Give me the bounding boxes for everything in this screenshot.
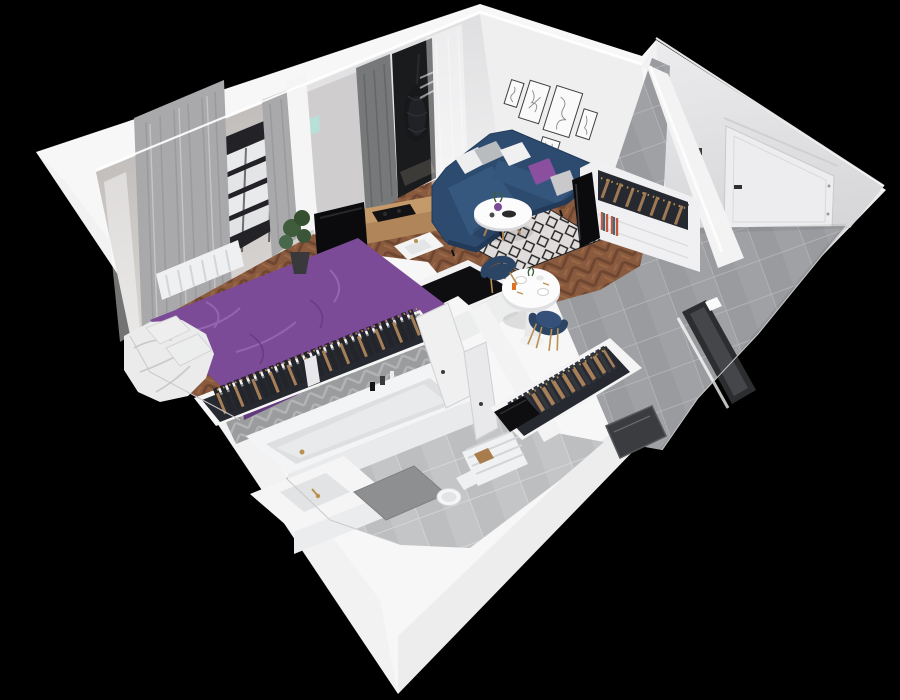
bottle-3: [390, 371, 394, 379]
door-hinge-bottom: [827, 213, 830, 216]
plate-2: [538, 289, 549, 296]
apartment-render: [0, 0, 900, 700]
plant-foliage-3: [279, 235, 293, 249]
sink-tap: [414, 239, 418, 243]
plate-1: [516, 277, 527, 284]
door-hinge-top: [828, 185, 831, 188]
bottle-2: [380, 376, 385, 385]
burner-2: [397, 209, 401, 213]
burner-1: [383, 212, 387, 216]
floorplan-svg: [0, 0, 900, 700]
table-decor: [502, 211, 516, 218]
table-foot: [520, 336, 544, 346]
vase-purple: [494, 203, 502, 211]
door-handle: [734, 185, 742, 189]
table-decor-2: [490, 213, 495, 218]
door-1-handle: [441, 370, 445, 374]
orange-juice: [512, 283, 516, 290]
tub-tap: [300, 450, 305, 455]
plant-foliage-4: [297, 229, 311, 243]
bowl: [536, 276, 544, 281]
toilet-seat: [442, 492, 457, 502]
plant-foliage-2: [294, 210, 310, 226]
door-2-handle: [479, 402, 483, 406]
bottle-1: [370, 382, 375, 391]
